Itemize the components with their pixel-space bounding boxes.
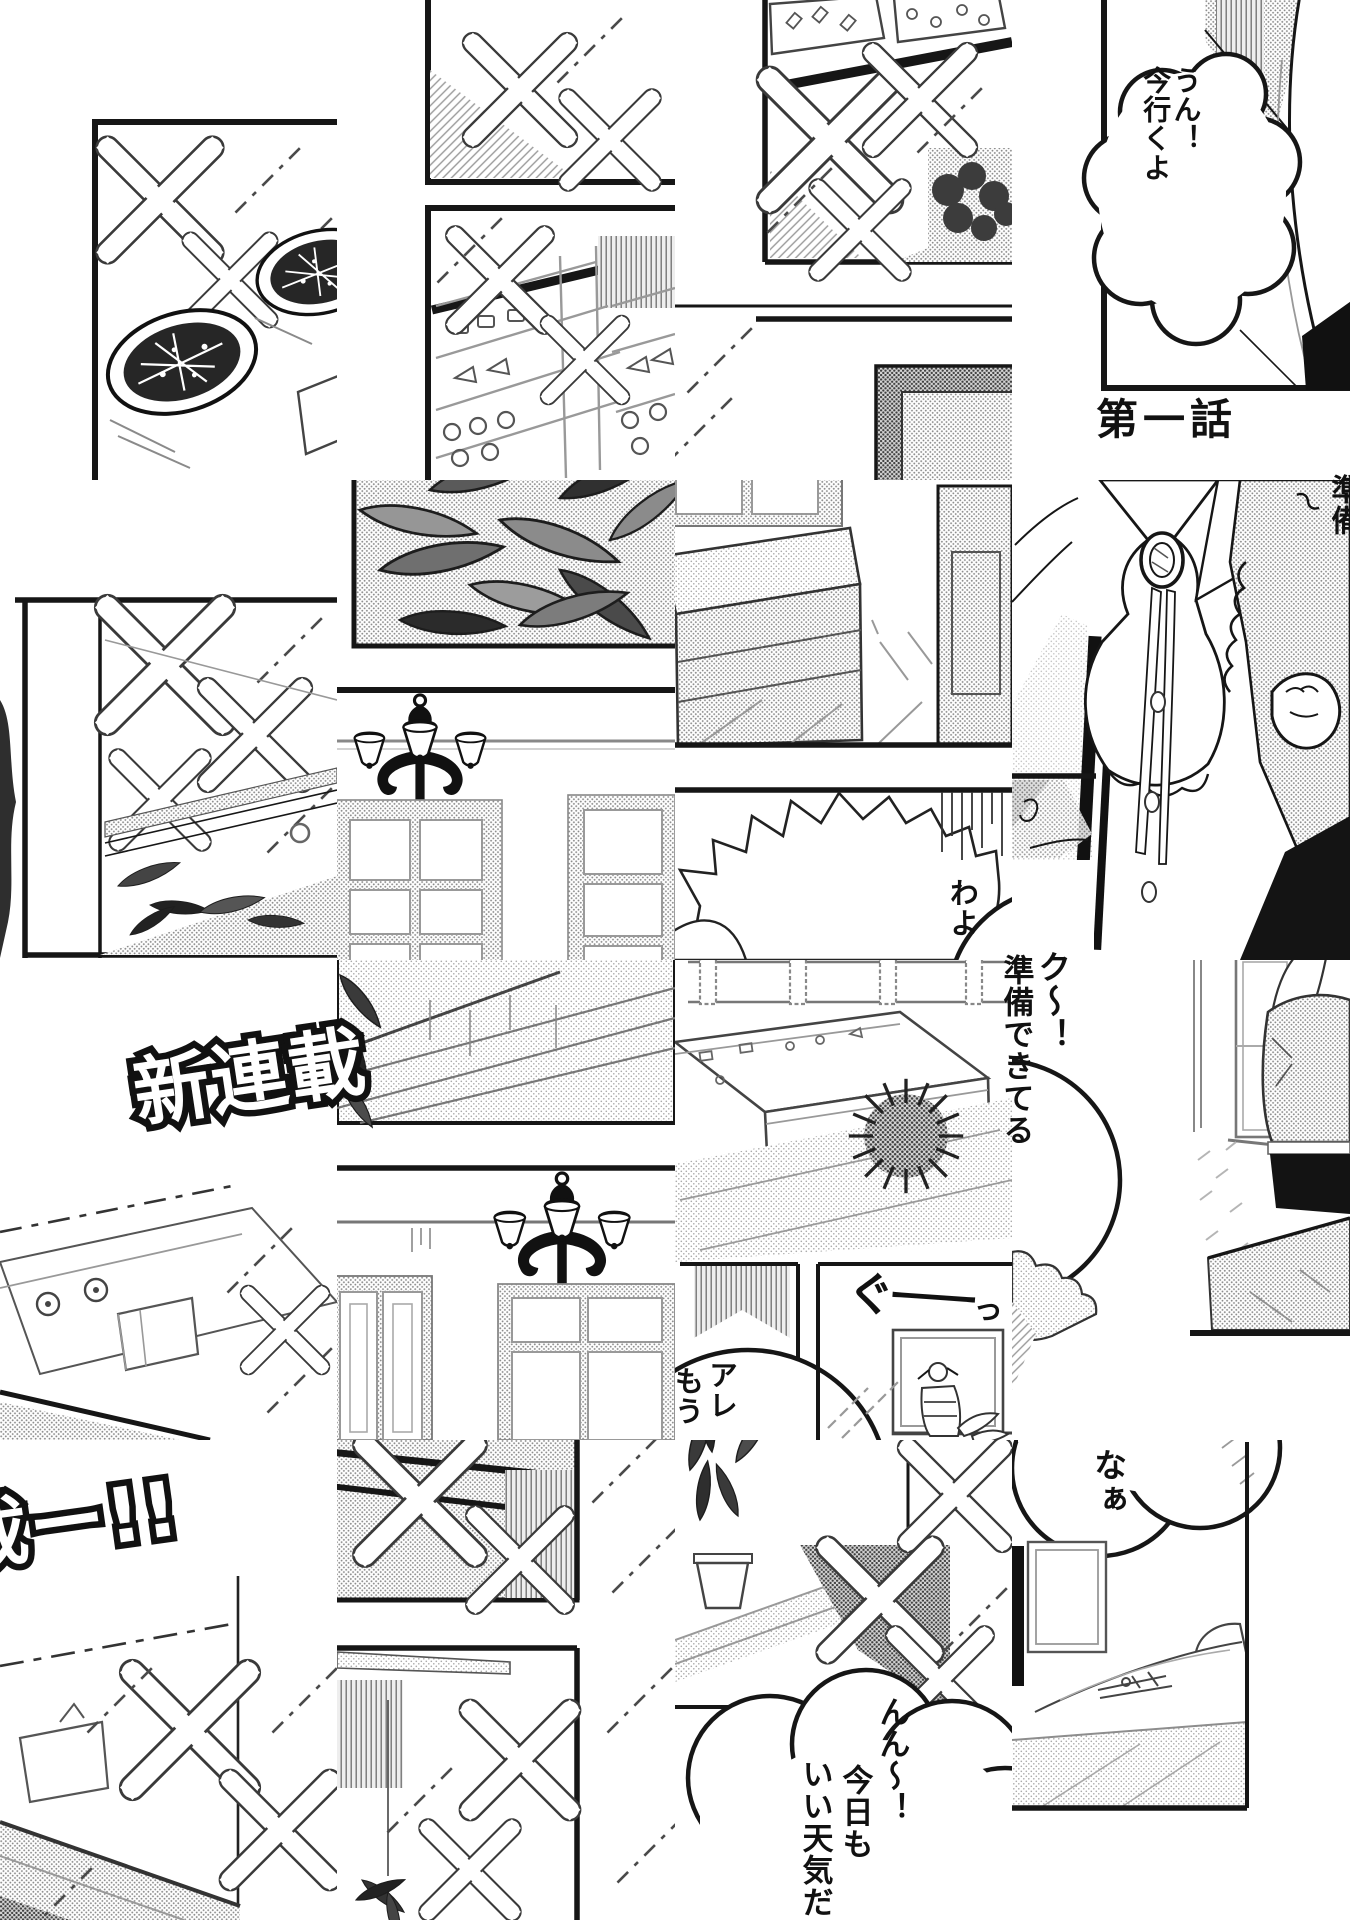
edge-clipped-text: 準備 — [1326, 474, 1350, 536]
tile-ceiling-chandelier-doors — [330, 955, 675, 1440]
speech-text-are: アレ — [705, 1360, 736, 1420]
tile-banner2-counter — [0, 1576, 394, 1920]
tile-shop-wall-plants — [667, 0, 1036, 502]
tile-bubble-going-panel — [1084, 0, 1350, 390]
speech-text-naa: なぁ — [1090, 1448, 1126, 1516]
tile-leaves-chandelier-windows — [330, 449, 696, 966]
tile-banner-counter — [0, 1186, 369, 1440]
tile-room-chest-head — [664, 468, 1176, 1116]
speech-text-going: うん！ 今行くよ — [1140, 66, 1200, 182]
tile-display-shelf — [398, 0, 768, 518]
speech-text-knock: ク〜！ — [1034, 950, 1070, 1052]
speech-text-ready: 準備できてる — [998, 954, 1031, 1146]
tile-table-sparkle-panel — [0, 533, 363, 958]
manga-collage-art — [0, 0, 1350, 1920]
speech-text-weather-3: いい天気だ — [797, 1758, 830, 1918]
tile-ceiling-hanging-plant — [294, 1374, 683, 1920]
speech-text-weather-1: んん〜！ — [874, 1696, 907, 1824]
sfx-guu: ぐ ー っ — [846, 1257, 1006, 1334]
manga-page: うん！ 今行くよ 第一話 新連載 載ー!! わよ ク〜！ 準備できてる 〜 準備… — [0, 0, 1350, 1920]
chapter-title: 第一話 — [1096, 386, 1237, 447]
tile-naa-bedroom — [1012, 1368, 1280, 1808]
speech-text-weather-2: 今日も — [837, 1764, 870, 1860]
hairpin-object — [1098, 1672, 1172, 1698]
speech-bubble-naa — [1012, 1368, 1280, 1556]
speech-text-wayo: わよ — [946, 878, 977, 938]
tile-cravat-character — [1012, 480, 1350, 966]
speech-text-mou: もう — [671, 1366, 702, 1426]
